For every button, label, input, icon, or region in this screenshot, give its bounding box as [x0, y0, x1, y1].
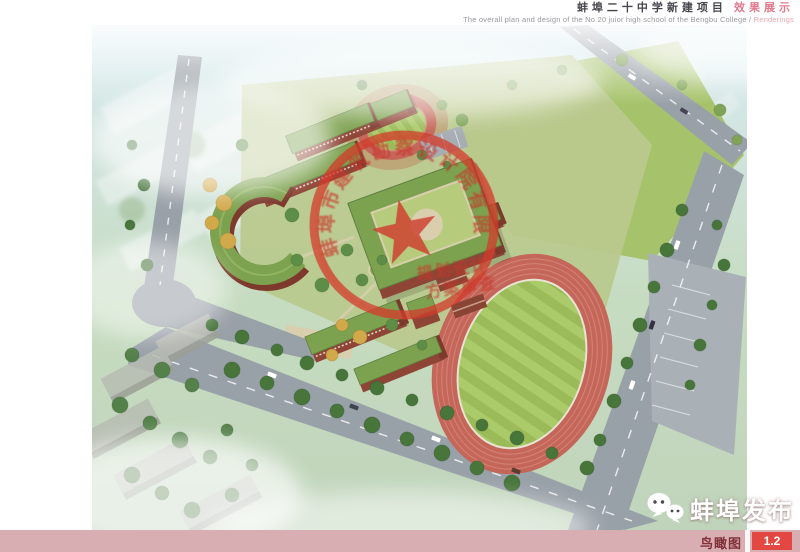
caption-divider — [745, 530, 750, 552]
slide-title: 蚌埠二十中学新建项目 效果展示 — [463, 2, 794, 15]
aerial-rendering-image: 蚌埠市建筑勘察设计院有限公司 规划设计 方案审查 — [92, 25, 747, 530]
slide-title-text: 蚌埠二十中学新建项目 — [577, 2, 727, 14]
page-caption: 鸟瞰图 — [700, 533, 742, 552]
slide-title-accent: 效果展示 — [734, 2, 794, 14]
publisher-watermark-text: 蚌埠发布 — [690, 491, 794, 526]
slide-header: 蚌埠二十中学新建项目 效果展示 The overall plan and des… — [463, 2, 794, 24]
publisher-watermark: 蚌埠发布 — [645, 491, 794, 526]
parking-lot-east — [648, 253, 746, 455]
slide-subtitle-accent: Renderings — [754, 15, 794, 24]
page-number-badge: 1.2 — [752, 532, 792, 550]
wechat-chat-bubbles-icon — [645, 492, 685, 526]
footer-bar: 鸟瞰图 1.2 — [0, 530, 800, 552]
slide-subtitle: The overall plan and design of the No 20… — [463, 16, 794, 25]
slide-subtitle-text: The overall plan and design of the No 20… — [463, 15, 751, 24]
